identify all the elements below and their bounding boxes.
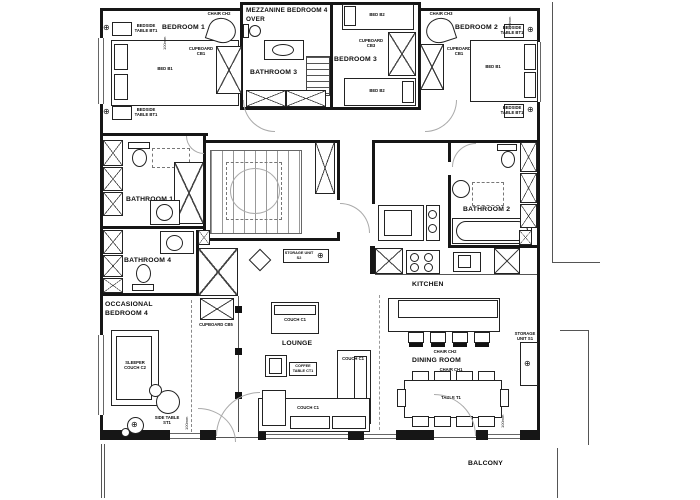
light-point-icon: ⊕ xyxy=(103,108,110,116)
stair-curve xyxy=(230,168,280,214)
hob-burner xyxy=(410,253,419,262)
window xyxy=(98,335,104,415)
dining-chair xyxy=(397,389,406,407)
coffee-table-label: COFFEE TABLE CT1 xyxy=(290,364,316,373)
exterior-wall xyxy=(396,430,434,440)
door-sill xyxy=(434,437,476,438)
bedside-table-label: BEDSIDE TABLE BT1 xyxy=(500,25,524,35)
window xyxy=(98,38,104,104)
bathtub-inner xyxy=(456,221,528,241)
bedside-table xyxy=(112,106,132,120)
bar-chair xyxy=(452,332,468,343)
bed-label: BED B2 xyxy=(362,12,392,17)
cupboard-label: CUPBOARD CB5 xyxy=(199,322,233,327)
exterior-wall xyxy=(537,8,540,42)
room-label-balcony: BALCONY xyxy=(468,460,503,467)
door-swing xyxy=(425,100,457,132)
cupboard-crosshatch xyxy=(520,142,537,172)
cupboard-crosshatch xyxy=(103,192,123,216)
hob-burner xyxy=(424,253,433,262)
bar-chair xyxy=(474,332,490,343)
interior-wall xyxy=(448,175,451,247)
cupboard-crosshatch xyxy=(103,140,123,166)
oven-knob xyxy=(428,210,437,219)
exterior-wall xyxy=(100,300,103,335)
storage-unit-label: STORAGE UNIT S1 xyxy=(510,331,540,341)
sleeper-couch-label: SLEEPER COUCH C2 xyxy=(118,360,152,370)
counter-edge xyxy=(375,274,537,275)
room-label-bathroom4: BATHROOM 4 xyxy=(124,257,171,264)
bar-chair-seat xyxy=(475,343,489,347)
door-swing xyxy=(452,143,476,167)
level-note: 100mm xyxy=(500,415,505,428)
room-label-occasional: BEDROOM 4 xyxy=(105,310,148,317)
exterior-wall xyxy=(476,430,488,440)
stair-core-wall xyxy=(203,238,340,241)
light-point-icon: ⊕ xyxy=(527,106,534,114)
floor-lamp-base xyxy=(121,428,130,437)
balcony-rail xyxy=(104,444,105,498)
cupboard-crosshatch xyxy=(286,90,326,107)
level-note: 100mm xyxy=(184,417,189,430)
pillow xyxy=(344,6,356,26)
interior-wall xyxy=(372,140,450,143)
basin xyxy=(166,235,183,251)
cupboard-crosshatch xyxy=(103,278,123,293)
interior-wall xyxy=(333,107,421,110)
side-table-inner xyxy=(269,358,282,374)
room-label-mezzanine: OVER xyxy=(246,16,265,23)
light-point-icon: ⊕ xyxy=(524,360,531,368)
fridge-inner xyxy=(384,210,412,236)
site-boundary-line xyxy=(552,262,600,263)
couch-label: COUCH C1 xyxy=(290,405,326,410)
interior-wall xyxy=(372,140,375,204)
bedside-table xyxy=(112,22,132,36)
sink-bowl xyxy=(458,255,471,268)
basin xyxy=(156,204,173,221)
toilet-bowl xyxy=(136,264,151,283)
pillow xyxy=(402,81,414,103)
dashed-guide-line xyxy=(379,295,380,430)
shower xyxy=(198,248,238,296)
pillow xyxy=(114,74,128,100)
bedside-table-label: BEDSIDE TABLE BT1 xyxy=(500,105,524,115)
counter-crosshatch xyxy=(494,248,520,274)
cupboard-crosshatch xyxy=(103,255,123,277)
cupboard-crosshatch xyxy=(420,44,444,90)
toilet-cistern xyxy=(132,284,154,291)
bedside-table-label: BEDSIDE TABLE BT1 xyxy=(133,107,159,117)
bar-chair-seat xyxy=(409,343,423,347)
stair-core-wall xyxy=(337,140,340,200)
interior-wall xyxy=(448,140,451,162)
room-label-kitchen: KITCHEN xyxy=(412,281,444,288)
bar-chair xyxy=(430,332,446,343)
couch-cushion xyxy=(332,416,366,429)
site-boundary-line xyxy=(588,330,589,445)
cupboard-crosshatch xyxy=(520,173,537,203)
window xyxy=(488,434,520,439)
cupboard-crosshatch xyxy=(103,230,123,254)
chair-label: CHAIR CH3 xyxy=(426,11,456,16)
exterior-wall xyxy=(348,432,364,440)
toilet-bowl xyxy=(501,151,515,168)
room-label-bathroom3: BATHROOM 3 xyxy=(250,69,297,76)
bar-chair xyxy=(408,332,424,343)
dining-chair xyxy=(500,389,509,407)
vanity-outline xyxy=(472,182,504,206)
couch-cushion xyxy=(262,390,286,426)
partition-node xyxy=(235,306,242,313)
cupboard-crosshatch xyxy=(103,167,123,191)
basin xyxy=(272,44,294,56)
cupboard-crosshatch xyxy=(519,230,532,245)
level-note: 100mm xyxy=(507,17,512,30)
cupboard-label: CUPBOARD CB3 xyxy=(358,38,384,48)
light-point-icon: ⊕ xyxy=(527,26,534,34)
room-label-bedroom2: BEDROOM 2 xyxy=(455,24,498,31)
bedside-table-label: BEDSIDE TABLE BT1 xyxy=(133,23,159,33)
site-boundary-line xyxy=(560,330,588,331)
couch-label: COUCH C1 xyxy=(277,317,313,322)
interior-wall xyxy=(100,226,206,229)
cupboard-crosshatch xyxy=(198,230,210,245)
couch-label: COUCH C1 xyxy=(338,356,368,361)
duct-crosshatch xyxy=(315,142,335,194)
door-swing xyxy=(243,100,275,132)
bar-chair-seat xyxy=(453,343,467,347)
bar-chair-seat xyxy=(431,343,445,347)
room-label-bathroom2: BATHROOM 2 xyxy=(463,206,510,213)
basin xyxy=(452,180,470,198)
dashed-guide-line xyxy=(191,300,192,432)
floor-plan-canvas: BEDROOM 1 BED B1 ⊕ BEDSIDE TABLE BT1 ⊕ B… xyxy=(0,0,700,500)
chair-label: CHAIR CH2 xyxy=(430,349,460,354)
balcony-rail xyxy=(557,448,558,498)
window xyxy=(170,433,200,439)
chair xyxy=(423,14,457,46)
storage-unit-label: STORAGE UNIT S2 xyxy=(284,251,314,260)
side-table-label: SIDE TABLE ST1 xyxy=(152,415,182,425)
cupboard-crosshatch xyxy=(216,46,242,94)
interior-wall xyxy=(330,3,333,110)
toilet-cistern xyxy=(497,144,517,151)
balcony-rail xyxy=(101,444,102,498)
pillow xyxy=(524,72,536,98)
room-label-lounge: LOUNGE xyxy=(282,340,312,347)
room-label-occasional: OCCASIONAL xyxy=(105,301,153,308)
side-table-round xyxy=(149,384,162,397)
chair-label: CHAIR CH2 xyxy=(204,11,234,16)
interior-wall xyxy=(100,293,206,296)
light-point-icon: ⊕ xyxy=(317,252,324,260)
dining-chair xyxy=(412,416,429,427)
light-point-icon: ⊕ xyxy=(103,24,110,32)
bed-label: BED B1 xyxy=(150,66,180,71)
couch-cushion xyxy=(274,305,316,315)
pillow xyxy=(114,44,128,70)
cupboard-label: CUPBOARD CB1 xyxy=(446,46,472,56)
oven-knob xyxy=(428,224,437,233)
kitchen-island-top xyxy=(398,300,498,318)
room-label-mezzanine: MEZZANINE BEDROOM 4 xyxy=(246,7,328,14)
hob-burner xyxy=(424,263,433,272)
toilet-bowl xyxy=(249,25,261,37)
couch-cushion xyxy=(290,416,330,429)
toilet-bowl xyxy=(132,149,147,167)
cupboard-crosshatch xyxy=(200,298,234,320)
side-table-diamond xyxy=(249,249,272,272)
counter-crosshatch xyxy=(375,248,403,274)
window xyxy=(364,434,396,439)
light-point-icon: ⊕ xyxy=(131,421,138,429)
partition-node xyxy=(235,348,242,355)
pillow xyxy=(524,44,536,70)
site-boundary-line xyxy=(552,2,553,262)
level-note: 100mm xyxy=(162,37,167,50)
dining-chair xyxy=(478,416,495,427)
door-swing xyxy=(340,203,370,233)
hob-burner xyxy=(410,263,419,272)
room-label-bedroom3: BEDROOM 3 xyxy=(334,56,377,63)
window xyxy=(266,434,348,439)
bed-label: BED B1 xyxy=(478,64,508,69)
room-label-bedroom1: BEDROOM 1 xyxy=(162,24,205,31)
cupboard-crosshatch xyxy=(388,32,416,76)
toilet-cistern xyxy=(128,142,150,149)
exterior-wall xyxy=(520,430,540,440)
bed-label: BED B2 xyxy=(362,88,392,93)
cupboard-label: CUPBOARD CB1 xyxy=(188,46,214,56)
cupboard-crosshatch xyxy=(520,204,537,228)
room-label-dining: DINING ROOM xyxy=(412,357,461,364)
